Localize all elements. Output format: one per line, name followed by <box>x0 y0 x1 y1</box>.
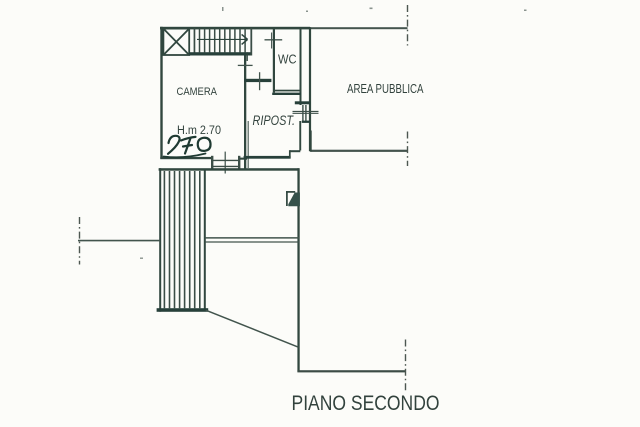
svg-text:AREA PUBBLICA: AREA PUBBLICA <box>347 82 424 96</box>
svg-text:PIANO SECONDO: PIANO SECONDO <box>292 391 440 415</box>
svg-text:CAMERA: CAMERA <box>177 86 218 98</box>
svg-text:RIPOST.: RIPOST. <box>253 113 296 128</box>
svg-text:H.m 2.70: H.m 2.70 <box>177 123 221 137</box>
svg-text:WC: WC <box>278 52 297 66</box>
